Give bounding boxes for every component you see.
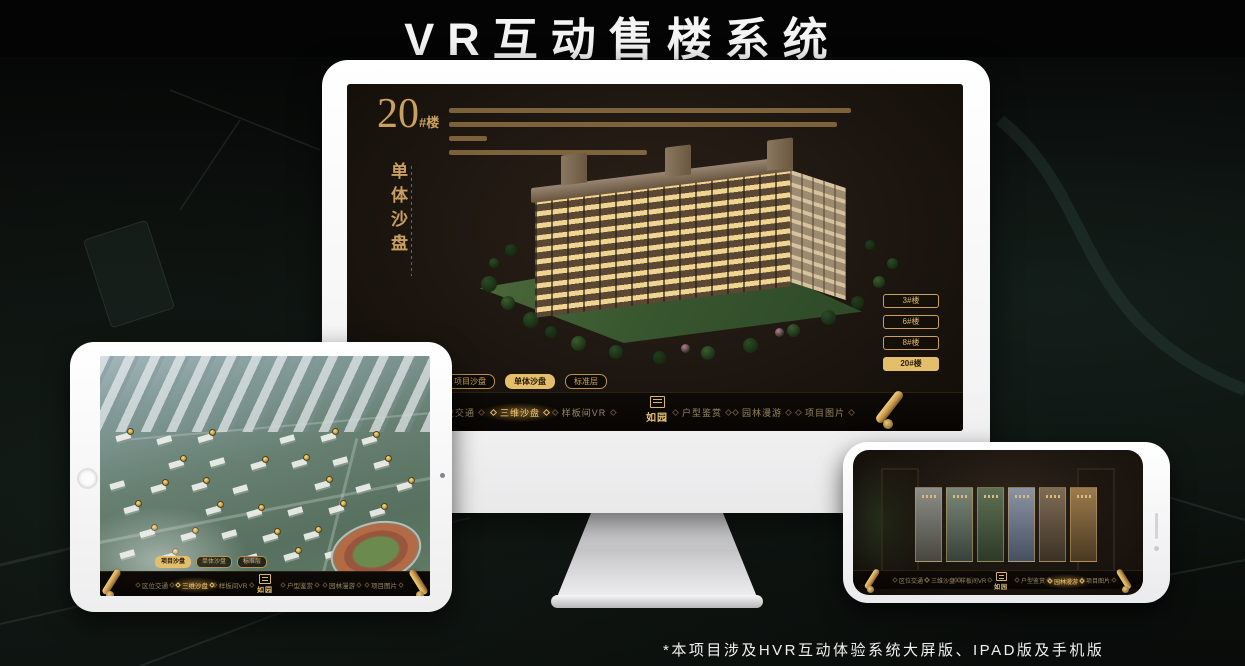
scene-card-label — [953, 495, 967, 498]
brand-emblem-icon — [995, 572, 1006, 581]
building-number-suffix: #楼 — [419, 115, 439, 130]
tree — [501, 296, 515, 310]
tree — [743, 338, 758, 353]
estate-building — [209, 457, 226, 469]
text-line — [449, 136, 487, 141]
vertical-rule — [411, 166, 412, 276]
tree — [681, 344, 690, 353]
building-number-badge[interactable] — [217, 501, 224, 508]
brand-logo[interactable]: 如园 — [646, 396, 668, 424]
scroll-swirl — [867, 586, 874, 593]
nav-item-garden-roam[interactable]: 园林漫游 — [729, 406, 795, 419]
estate-building — [287, 506, 304, 518]
building-3d-model[interactable] — [475, 148, 925, 372]
tree — [545, 326, 557, 338]
nav-item-showflat-vr[interactable]: 样板间VR — [211, 580, 256, 590]
tree — [609, 345, 623, 359]
scroll-swirl — [106, 591, 114, 596]
building-number-badge[interactable] — [340, 500, 347, 507]
scene-card[interactable] — [946, 487, 973, 562]
tablet-frame: 项目沙盘 单体沙盘 标准层 区位交通 三维沙盘 样板间VR 如园 户型鉴赏 园林… — [70, 342, 452, 612]
building-number-badge[interactable] — [315, 526, 322, 533]
monitor-stand-base — [551, 595, 763, 608]
building-number-badge[interactable] — [209, 429, 216, 436]
brand-logo[interactable]: 如园 — [257, 574, 273, 595]
brand-logo-text: 如园 — [257, 585, 273, 595]
building-number-badge[interactable] — [258, 504, 265, 511]
phone-frame: 区位交通 三维沙盘 样板间VR 如园 户型鉴赏 园林漫游 项目图片 — [843, 442, 1170, 603]
sub-tab-bar: 项目沙盘 单体沙盘 标准层 — [445, 374, 607, 389]
building-number-badge[interactable] — [274, 528, 281, 535]
door-frame — [881, 468, 919, 582]
scene-card[interactable] — [977, 487, 1004, 562]
building-number-badge[interactable] — [203, 477, 210, 484]
section-title-vertical: 单体沙盘 — [385, 162, 410, 258]
roof-tower — [665, 144, 691, 177]
tree — [775, 328, 784, 337]
scroll-menu-icon[interactable] — [108, 568, 115, 596]
scroll-swirl — [883, 419, 893, 429]
scene-card-label — [922, 495, 936, 498]
brand-emblem-icon — [650, 396, 665, 408]
scene-card-label — [1077, 495, 1091, 498]
tree — [787, 324, 800, 337]
tree — [505, 244, 517, 256]
scene-card[interactable] — [915, 487, 942, 562]
nav-item-floorplans[interactable]: 户型鉴赏 — [669, 406, 735, 419]
roof-tower — [767, 137, 793, 170]
page-title: VR互动售楼系统 — [0, 3, 1245, 68]
tree — [481, 276, 497, 292]
building-number-badge[interactable] — [127, 428, 134, 435]
floor-button[interactable]: 8#楼 — [883, 336, 939, 350]
estate-building — [109, 480, 126, 492]
tree — [571, 336, 586, 351]
sub-tab[interactable]: 标准层 — [565, 374, 607, 389]
estate-building — [232, 484, 249, 496]
tree — [865, 240, 875, 250]
scene-card-label — [1015, 495, 1029, 498]
brand-logo[interactable]: 如园 — [994, 572, 1008, 591]
scroll-menu-icon[interactable] — [885, 388, 894, 426]
building-number-badge[interactable] — [326, 476, 333, 483]
aerial-city-band — [100, 356, 430, 432]
building-number-title: 20#楼 — [377, 90, 439, 138]
main-nav-bar: 区位交通 三维沙盘 样板间VR 如园 户型鉴赏 园林漫游 项目图片 — [100, 571, 430, 596]
main-nav-bar: 区位交通 三维沙盘 样板间VR 如园 户型鉴赏 园林漫游 项目图片 — [853, 570, 1143, 589]
sub-tab[interactable]: 单体沙盘 — [196, 556, 232, 568]
scroll-swirl — [416, 591, 424, 596]
tree — [701, 346, 715, 360]
nav-item-garden-roam[interactable]: 园林漫游 — [321, 580, 363, 590]
building-number-badge[interactable] — [162, 479, 169, 486]
scene-card[interactable] — [1039, 487, 1066, 562]
nav-item-showflat-vr[interactable]: 样板间VR — [549, 406, 620, 419]
nav-item-sandtable[interactable]: 三维沙盘 — [481, 403, 559, 422]
sub-tab[interactable]: 项目沙盘 — [445, 374, 495, 389]
scroll-menu-icon[interactable] — [1121, 568, 1127, 590]
tree — [887, 258, 898, 269]
tree — [821, 310, 836, 325]
brand-logo-text: 如园 — [646, 409, 668, 424]
building-number-badge[interactable] — [408, 477, 415, 484]
footnote-text: *本项目涉及HVR互动体验系统大屏版、IPAD版及手机版 — [663, 639, 1104, 660]
promo-composite: VR互动售楼系统 20#楼 单体沙盘 — [0, 0, 1245, 666]
scene-card-label — [984, 495, 998, 498]
sub-tab[interactable]: 单体沙盘 — [505, 374, 555, 389]
estate-building — [279, 434, 296, 446]
text-line — [449, 108, 851, 113]
scene-card-gallery — [915, 487, 1097, 562]
nav-item-showflat-vr[interactable]: 样板间VR — [952, 576, 994, 585]
phone-screen: 区位交通 三维沙盘 样板间VR 如园 户型鉴赏 园林漫游 项目图片 — [853, 450, 1143, 595]
building-number-badge[interactable] — [381, 503, 388, 510]
estate-building — [332, 456, 349, 468]
brand-logo-text: 如园 — [994, 582, 1008, 591]
building-number-badge[interactable] — [332, 428, 339, 435]
nav-item-project-photos[interactable]: 项目图片 — [1078, 576, 1118, 585]
building-number-badge[interactable] — [262, 456, 269, 463]
nav-item-floorplans[interactable]: 户型鉴赏 — [279, 580, 321, 590]
sub-tab[interactable]: 项目沙盘 — [155, 556, 191, 568]
building-number-badge[interactable] — [385, 455, 392, 462]
monitor-stand-neck — [557, 513, 757, 597]
floor-button[interactable]: 20#楼 — [883, 357, 939, 371]
sub-tab[interactable]: 标准层 — [237, 556, 267, 568]
building-number-badge[interactable] — [295, 547, 302, 554]
home-button[interactable] — [77, 468, 98, 489]
scene-card-label — [1046, 495, 1060, 498]
building-number-badge[interactable] — [373, 431, 380, 438]
scroll-menu-icon[interactable] — [415, 568, 422, 596]
scroll-swirl — [1122, 586, 1129, 593]
tree — [873, 276, 885, 288]
tree — [489, 258, 499, 268]
sub-tab-bar: 项目沙盘 单体沙盘 标准层 — [155, 556, 267, 568]
roof-tower — [561, 152, 587, 185]
scroll-menu-icon[interactable] — [869, 568, 875, 590]
speaker-icon — [1155, 513, 1158, 539]
scene-card[interactable] — [1008, 487, 1035, 562]
building-number-badge[interactable] — [303, 454, 310, 461]
building-side-facade — [790, 170, 846, 300]
camera-icon — [1154, 546, 1159, 551]
floor-button[interactable]: 3#楼 — [883, 294, 939, 308]
nav-item-project-photos[interactable]: 项目图片 — [363, 580, 405, 590]
nav-item-project-photos[interactable]: 项目图片 — [792, 406, 858, 419]
scene-card[interactable] — [1070, 487, 1097, 562]
building-number-badge[interactable] — [180, 455, 187, 462]
tree — [653, 351, 666, 364]
tablet-screen: 项目沙盘 单体沙盘 标准层 区位交通 三维沙盘 样板间VR 如园 户型鉴赏 园林… — [100, 356, 430, 596]
building-number-badge[interactable] — [135, 500, 142, 507]
tree — [851, 296, 864, 309]
brand-emblem-icon — [259, 574, 271, 584]
estate-building — [355, 483, 372, 495]
camera-icon — [440, 473, 445, 478]
text-line — [449, 122, 837, 127]
floor-button-group: 3#楼 6#楼 8#楼 20#楼 — [883, 294, 939, 378]
floor-button[interactable]: 6#楼 — [883, 315, 939, 329]
